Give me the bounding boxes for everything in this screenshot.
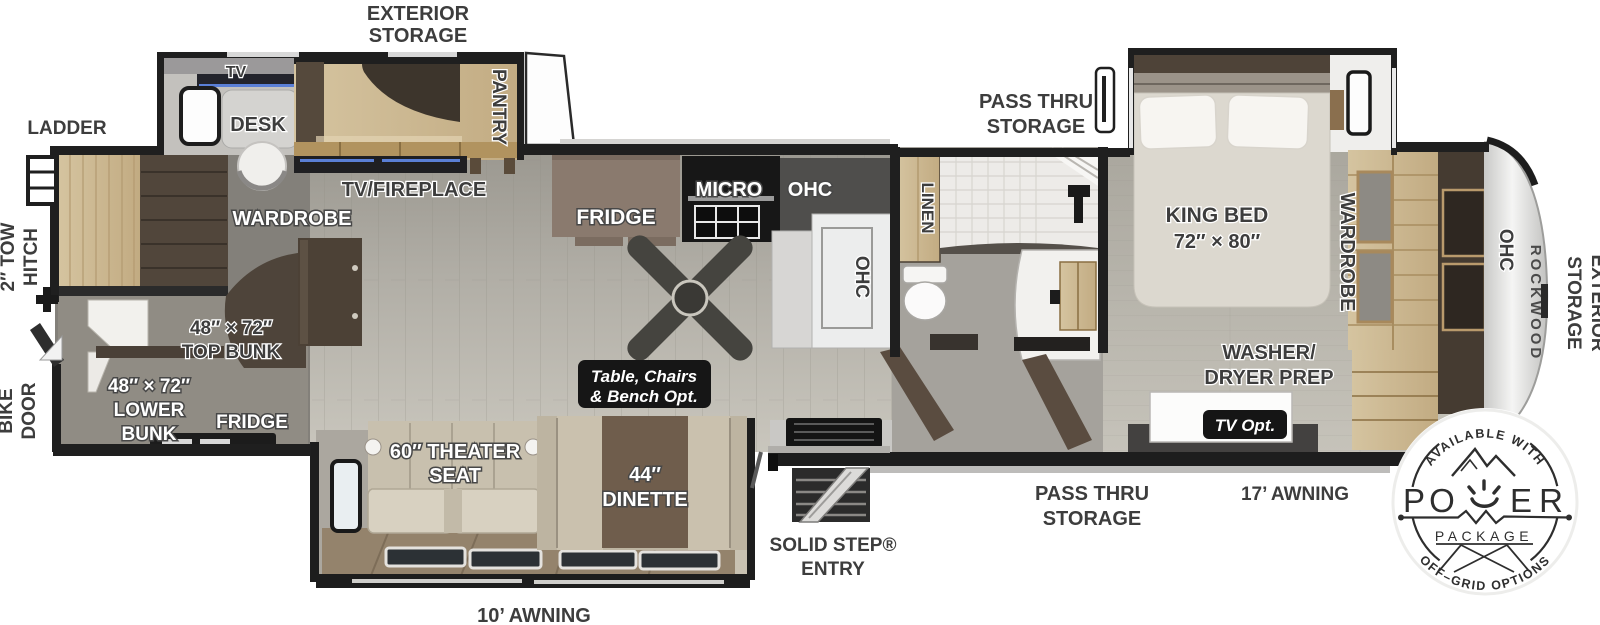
svg-text:TOP BUNK: TOP BUNK bbox=[182, 342, 281, 363]
svg-text:PACKAGE: PACKAGE bbox=[1435, 528, 1533, 544]
svg-text:60″ THEATER: 60″ THEATER bbox=[390, 441, 521, 463]
svg-text:TV/FIREPLACE: TV/FIREPLACE bbox=[342, 179, 486, 201]
svg-text:STORAGE: STORAGE bbox=[1563, 256, 1584, 350]
svg-text:HITCH: HITCH bbox=[21, 228, 42, 286]
svg-text:STORAGE: STORAGE bbox=[369, 25, 468, 47]
svg-text:WARDROBE: WARDROBE bbox=[1336, 193, 1358, 312]
svg-text:ROCKWOOD: ROCKWOOD bbox=[1527, 245, 1544, 362]
svg-text:48″ × 72″: 48″ × 72″ bbox=[108, 376, 190, 397]
svg-text:P: P bbox=[1403, 482, 1425, 519]
svg-text:48″ × 72″: 48″ × 72″ bbox=[190, 318, 272, 339]
svg-text:LINEN: LINEN bbox=[918, 183, 937, 234]
svg-text:DESK: DESK bbox=[230, 114, 286, 136]
svg-text:BIKE: BIKE bbox=[0, 388, 17, 433]
svg-text:72″ × 80″: 72″ × 80″ bbox=[1174, 231, 1261, 253]
svg-text:& Bench Opt.: & Bench Opt. bbox=[590, 387, 698, 406]
svg-text:EXTERIOR: EXTERIOR bbox=[1587, 254, 1600, 351]
svg-text:DOOR: DOOR bbox=[19, 382, 40, 439]
svg-text:STORAGE: STORAGE bbox=[987, 116, 1086, 138]
svg-text:2″ TOW: 2″ TOW bbox=[0, 222, 19, 291]
svg-text:KING BED: KING BED bbox=[1166, 204, 1269, 227]
svg-text:R: R bbox=[1539, 482, 1563, 519]
svg-text:OHC: OHC bbox=[788, 179, 832, 201]
svg-text:EXTERIOR: EXTERIOR bbox=[367, 3, 470, 25]
svg-text:DINETTE: DINETTE bbox=[602, 489, 688, 511]
svg-text:PASS THRU: PASS THRU bbox=[979, 91, 1093, 113]
svg-text:SEAT: SEAT bbox=[429, 465, 481, 487]
svg-text:E: E bbox=[1510, 482, 1532, 519]
svg-text:PASS THRU: PASS THRU bbox=[1035, 483, 1149, 505]
svg-text:TV Opt.: TV Opt. bbox=[1215, 416, 1275, 435]
svg-text:17’ AWNING: 17’ AWNING bbox=[1241, 484, 1349, 505]
svg-text:STORAGE: STORAGE bbox=[1043, 508, 1142, 530]
svg-text:PANTRY: PANTRY bbox=[488, 69, 509, 145]
svg-text:OHC: OHC bbox=[851, 256, 872, 299]
svg-text:10’ AWNING: 10’ AWNING bbox=[477, 605, 591, 625]
svg-text:OHC: OHC bbox=[1495, 229, 1516, 272]
svg-text:LADDER: LADDER bbox=[27, 118, 106, 139]
svg-text:FRIDGE: FRIDGE bbox=[576, 206, 655, 229]
svg-text:O: O bbox=[1429, 482, 1455, 519]
svg-text:TV: TV bbox=[226, 64, 247, 81]
svg-text:ENTRY: ENTRY bbox=[801, 559, 865, 580]
svg-text:44″: 44″ bbox=[629, 464, 661, 486]
svg-text:FRIDGE: FRIDGE bbox=[216, 412, 288, 433]
svg-text:BUNK: BUNK bbox=[122, 424, 177, 445]
svg-text:SOLID STEP®: SOLID STEP® bbox=[770, 535, 897, 556]
svg-text:DRYER PREP: DRYER PREP bbox=[1204, 367, 1333, 389]
svg-text:Table, Chairs: Table, Chairs bbox=[591, 367, 697, 386]
svg-text:MICRO: MICRO bbox=[696, 179, 763, 201]
svg-text:WASHER/: WASHER/ bbox=[1222, 342, 1316, 364]
svg-text:LOWER: LOWER bbox=[114, 400, 185, 421]
svg-text:WARDROBE: WARDROBE bbox=[233, 208, 352, 230]
